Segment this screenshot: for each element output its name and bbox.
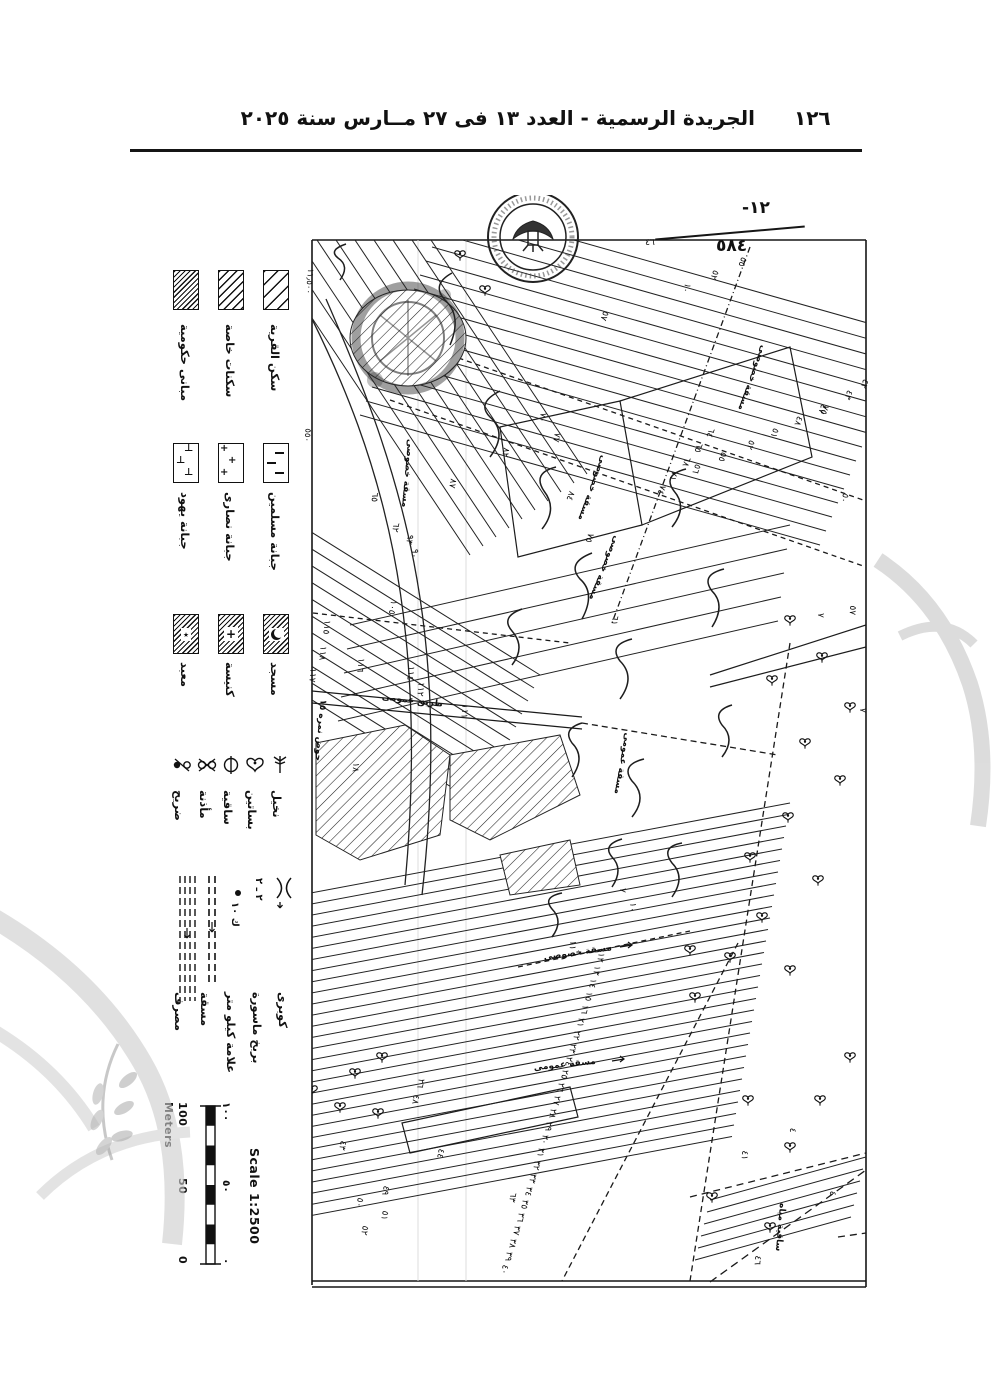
parcel-number: ٦٥ — [369, 492, 380, 503]
parcel-number: ٤٦ — [752, 1255, 763, 1266]
legend-label-shrine: ضريح — [172, 790, 186, 821]
parcel-number: ٣٦ — [514, 1212, 526, 1223]
parcel-number: ٤٢ — [857, 377, 868, 390]
parcel-number: ٤٣ — [841, 388, 854, 401]
parcel-number: ٢٣ — [566, 1043, 578, 1054]
orchard-tree-icon — [785, 616, 796, 626]
crescent-icon — [269, 628, 284, 641]
scale-tick-0: 0 — [176, 1256, 189, 1264]
orchard-tree-icon — [785, 1143, 796, 1153]
parcel-number: ٥٢ — [707, 268, 720, 281]
waterwheel-icon — [221, 755, 241, 775]
scale-tick-100: 100 — [176, 1102, 189, 1126]
parcel-number: ٢٧ — [550, 1095, 562, 1106]
parcel-number: ٧٧ — [550, 432, 562, 443]
legend-swatch-village-housing — [263, 270, 289, 310]
parcel-number: ٥٠ — [353, 1197, 365, 1208]
parcel-number: ١١٦ — [354, 658, 365, 673]
map-feature-label: ساقية مياه — [773, 1203, 787, 1252]
parcel-number: ٣٧ — [510, 1225, 522, 1236]
culvert-symbol-text: ٢ ـ ٢ — [253, 878, 264, 901]
legend-label-minaret: مأذنة — [197, 790, 211, 819]
orchard-tree-icon — [813, 876, 824, 886]
parcel-number: ١٠ — [680, 281, 693, 294]
parcel-number: ٣٠ — [538, 1134, 550, 1145]
parcel-number: ٧١ — [667, 469, 680, 482]
scale-tick-0-ar: ٠ — [220, 1258, 232, 1264]
scale-tick-100-ar: ١٠٠ — [220, 1102, 232, 1121]
orchard-tree-icon — [783, 813, 794, 823]
parcel-number: ١٠٥ — [386, 599, 398, 615]
label-arrows — [612, 942, 632, 1062]
legend-swatch-church: + — [218, 614, 244, 654]
gazette-page: الجريدة الرسمية - العدد ١٣ فى ٢٧ مــارس … — [0, 0, 991, 1400]
parcel-number: ١١٤ — [404, 666, 415, 681]
scale-ratio-label: Scale 1:2500 — [247, 1148, 262, 1244]
parcel-number: ٥٧ — [847, 605, 858, 616]
parcel-number: ٧٥ — [582, 531, 595, 544]
legend-label-orchards: بساتين — [245, 790, 259, 830]
parcel-number: ٢٨ — [546, 1108, 558, 1119]
orchard-tree-icon — [707, 1193, 718, 1203]
parcel-number: ١٠ — [627, 902, 638, 913]
parcel-number: ١١٧ — [306, 668, 317, 683]
legend-label-jewish-cemetery: جبانة يهود — [178, 492, 192, 550]
bridge-icon — [272, 876, 296, 910]
legend-label-mosque: مسجد — [268, 662, 282, 696]
parcel-number: ١١١ — [458, 704, 469, 719]
legend-label-church: كنيسة — [223, 662, 237, 697]
parcel-number: ٣١ — [534, 1147, 546, 1158]
kilometre-symbol-text: ك ١٠ — [229, 902, 240, 927]
legend-label-culvert: بربخ ماسورة — [250, 992, 264, 1063]
parcel-number: ٢١ — [574, 1017, 586, 1028]
legend-swatch-private-housing — [218, 270, 244, 310]
laurel-branch-watermark — [88, 1044, 140, 1160]
legend-swatch-government-buildings — [173, 270, 199, 310]
orchard-tree-icon — [845, 703, 856, 713]
legend-label-palms: نخيل — [270, 790, 284, 818]
parcel-number: ٢٦ — [554, 1082, 566, 1093]
orchard-tree-icon — [815, 1096, 826, 1106]
orchard-tree-icon — [725, 953, 736, 963]
canal-symbol-icon — [204, 876, 222, 986]
map-feature-label: مسقة خصوصى — [735, 344, 768, 412]
orchard-tree-icon — [335, 1103, 346, 1113]
parcel-number: ٩٣ — [403, 534, 415, 545]
parcel-number: ٦٤ — [703, 426, 716, 439]
legend-label-drain: مصرف — [172, 992, 186, 1031]
parcel-number: ١٤ — [586, 978, 598, 989]
parcel-number: ١٥ — [582, 991, 594, 1002]
parcel-number: ٣٨ — [506, 1238, 518, 1249]
scale-unit-label: Meters — [162, 1102, 175, 1148]
parcel-number: ٧٤ — [654, 483, 667, 496]
legend-swatch-temple: ٭ — [173, 614, 199, 654]
parcel-number: ٥٦ — [689, 462, 702, 475]
parcel-number: ٨٢ — [499, 447, 511, 458]
parcel-number: ٧ — [857, 707, 867, 713]
kilometre-dot-icon — [235, 890, 241, 896]
palm-icon — [270, 755, 290, 775]
star-icon: ٭ — [181, 628, 191, 641]
scale-tick-50-ar: ٥٠ — [220, 1180, 232, 1193]
parcel-number: ١٦ — [578, 1004, 590, 1015]
map-feature-label: مسقة خصوصى — [399, 439, 415, 508]
parcel-number: ٦٣ — [506, 1192, 518, 1203]
parcel-number: ١١٨ — [316, 646, 327, 661]
cross-icon: + — [224, 627, 238, 641]
parcel-number: ٤١ — [739, 1150, 750, 1161]
parcel-number: ٢٩ — [542, 1121, 554, 1132]
map-edge-value: ١١٫٥٠٠ — [303, 268, 315, 294]
legend-label-muslim-cemetery: جبانة مسلمين — [268, 492, 282, 571]
orchard-tree-icon — [767, 676, 778, 686]
parcel-number: ٧ — [815, 612, 825, 618]
parcel-number: ٤٩ — [379, 1185, 391, 1196]
page-number: ١٢٦ — [794, 106, 831, 130]
parcel-number: ٨٧ — [446, 478, 458, 489]
parcel-number: ٤٨ — [409, 1094, 421, 1105]
legend-swatch-christian-cemetery: +++ — [218, 443, 244, 483]
orchard-tree-icon — [785, 966, 796, 976]
legend-label-temple: معبد — [178, 662, 192, 687]
map-edge-value: ٥٥٠ — [301, 428, 312, 443]
orchard-icon — [245, 755, 265, 775]
parcel-number: ١١٢ — [414, 682, 425, 697]
parcel-number: ٩٠ — [408, 548, 420, 559]
header-rule — [130, 149, 862, 152]
legend-swatch-mosque — [263, 614, 289, 654]
parcel-number: ٣٥ — [518, 1199, 530, 1210]
legend-label-kilometre-mark: علامة كيلو متر — [224, 992, 238, 1073]
orchard-tree-icon — [743, 1096, 754, 1106]
parcel-number: ١٣ — [590, 965, 602, 976]
dashes-icon — [264, 444, 288, 482]
map-feature-label: طريق عمومى — [381, 692, 443, 709]
parcel-number: ١٨ — [350, 762, 361, 773]
map-feature-label: مسقة خصوصى — [586, 534, 621, 601]
parcel-number: ٥٢ — [358, 1225, 370, 1236]
parcel-number: ٨٤ — [563, 489, 576, 502]
parcel-number: ٥٢ — [743, 438, 756, 451]
legend-swatch-muslim-cemetery — [263, 443, 289, 483]
parcel-number: ٤٠ — [498, 1264, 510, 1275]
parcel-number: ٢٦ — [414, 1078, 426, 1089]
parcel-number: ٤٣ — [336, 1140, 348, 1151]
orchard-tree-icon — [757, 913, 768, 923]
parcel-number: ٣٢ — [530, 1160, 542, 1171]
crosses-icon: +++ — [219, 444, 243, 482]
eagle-stamp-icon — [513, 221, 553, 252]
legend-label-government-buildings: مبانى حكومية — [178, 324, 192, 401]
parcel-number: ٤٤ — [434, 1148, 446, 1159]
parcel-number: ٥١ — [378, 1210, 390, 1221]
map-edge-values: ١١٫٥٠٠٥٥٠ — [301, 268, 315, 442]
parcel-number: ٦١ — [608, 615, 620, 626]
orchard-tree-icon — [455, 251, 466, 261]
parcel-number: ٧ — [617, 887, 627, 893]
legend-label-village-housing: سكن القرية — [268, 324, 282, 391]
parcel-number: ٣٩ — [502, 1251, 514, 1262]
parcel-number: ٥٥ — [715, 450, 728, 463]
parcel-number: ٢٢ — [570, 1030, 582, 1041]
cadastral-map-svg: ٤٦٥٥٥٢١٠٥٧٤٢٤٣٤٧٤٨٥١٥٢٥٥٥٦٧٥٥٠٧٥٧٦٤٦٥٦٨٧… — [150, 195, 868, 1295]
seal-ring-text — [494, 198, 572, 276]
parcel-number: ٤ — [827, 1190, 837, 1196]
parcel-number: ٤٦ — [645, 238, 655, 248]
village-built-areas — [316, 290, 580, 895]
parcel-number: ٣٣ — [526, 1173, 538, 1184]
parcel-number: ٥٥ — [735, 255, 748, 268]
parcel-number: ٤ — [787, 1127, 797, 1133]
legend-label-waterwheel: ساقية — [221, 790, 235, 825]
shrine-icon — [172, 755, 192, 775]
legend-label-bridge: كوبرى — [276, 992, 290, 1028]
parcel-number: ٦٢ — [389, 522, 401, 533]
map-feature-label: مسقة عمومى — [612, 732, 633, 795]
parcel-number: ٧٠ — [536, 412, 548, 423]
parcel-number: ٥٠ — [838, 491, 851, 504]
orchard-tree-icon — [800, 739, 811, 749]
orchard-tree-icon — [845, 1053, 856, 1063]
legend-label-canal: مسقة — [198, 992, 212, 1026]
parcel-number: ٥٧ — [597, 309, 610, 322]
parcel-number: ٦٥ — [691, 441, 704, 454]
drain-symbol-icon — [176, 876, 198, 1001]
parcel-number: ٣٤ — [522, 1186, 534, 1197]
orchard-tree-icon — [690, 993, 701, 1003]
legend-swatch-jewish-cemetery: ⊥⊥⊥ — [173, 443, 199, 483]
parcel-number: ١١٥ — [320, 620, 331, 635]
parcel-number: ٥١ — [768, 426, 781, 439]
official-seal — [488, 195, 578, 282]
parcel-number: ٦٨ — [679, 455, 692, 468]
minaret-icon — [197, 755, 217, 775]
gazette-header-title: الجريدة الرسمية - العدد ١٣ فى ٢٧ مــارس … — [241, 106, 755, 130]
inked-stamp-smudged — [356, 286, 460, 390]
orchard-tree-icon — [835, 776, 846, 786]
legend-label-christian-cemetery: جبانة نصارى — [223, 492, 237, 562]
scale-tick-50: 50 — [176, 1178, 189, 1194]
tee-marks-icon: ⊥⊥⊥ — [174, 444, 198, 482]
legend-label-private-housing: سكنات خاصة — [223, 324, 237, 397]
parcel-number: ٤٨ — [791, 414, 804, 427]
